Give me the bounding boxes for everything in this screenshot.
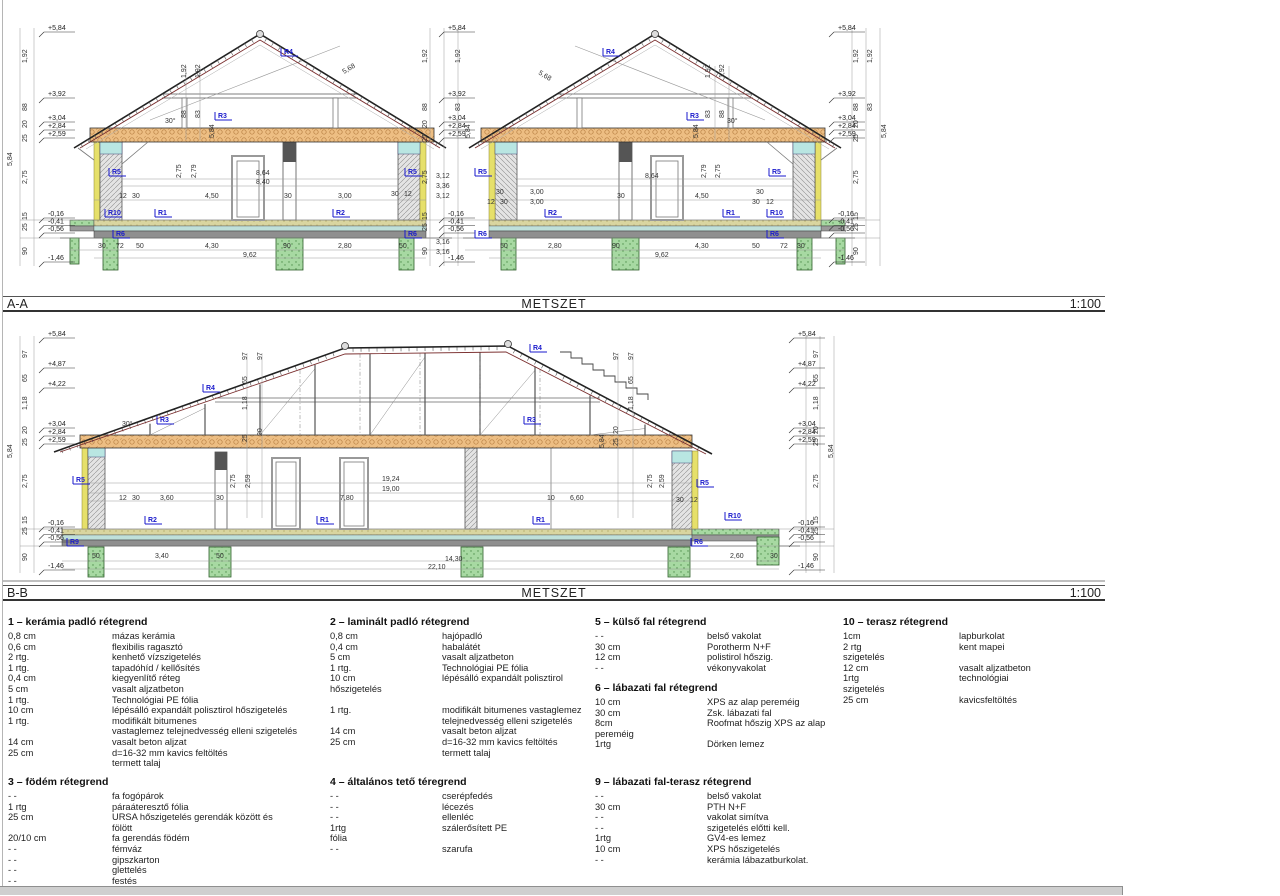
dimension-label: 25: [422, 134, 429, 142]
legend-layer-description: vasalt aljzatbeton: [959, 663, 1115, 674]
legend-layer-description: belső vakolat: [707, 631, 841, 642]
dimension-label: 90: [853, 247, 860, 255]
dimension-label: 25: [813, 527, 820, 535]
dimension-label: 30: [617, 193, 625, 200]
legend-layer-thickness: - -: [8, 844, 112, 855]
legend-layer-description: kent mapei: [959, 642, 1115, 653]
legend-layer-thickness: 1rtg: [595, 739, 707, 750]
dimension-label: 30°: [727, 117, 738, 125]
horizontal-scrollbar[interactable]: [0, 886, 1123, 895]
legend-layer-thickness: hőszigetelés: [330, 684, 442, 695]
dimension-label: 90: [22, 247, 29, 255]
legend-layer-thickness: 1rtg: [843, 673, 959, 684]
legend-layer-thickness: [330, 695, 442, 706]
elevation-label: -0,41: [448, 219, 464, 226]
layer-ref-label: R10: [728, 513, 741, 520]
legend-layer-description: habalátét: [442, 642, 592, 653]
dimension-label: 50: [136, 243, 144, 250]
layer-ref-label: R5: [112, 169, 121, 176]
legend-row: 0,4 cmkiegyenlítő réteg: [8, 673, 326, 684]
legend-layer-description: mázas kerámia: [112, 631, 326, 642]
legend-layer-description: szálerősített PE: [442, 823, 592, 834]
layer-ref-label: R9: [70, 539, 79, 546]
legend-layer-description: festés: [112, 876, 326, 887]
dimension-label: 4,30: [205, 243, 219, 250]
dimension-label: 12: [766, 199, 774, 206]
dimension-label: 1,18: [22, 396, 29, 410]
legend-layer-thickness: fólia: [330, 833, 442, 844]
legend-layer-description: fa gerendás födém: [112, 833, 326, 844]
dimension-label: 3,00: [338, 193, 352, 200]
legend-layer-description: XPS hőszigetelés: [707, 844, 841, 855]
dimension-label: 97: [242, 352, 249, 360]
elevation-label: -0,16: [48, 211, 64, 218]
legend-title: 6 – lábazati fal rétegrend: [595, 682, 841, 694]
dimension-label: 30: [752, 199, 760, 206]
layer-ref-label: R3: [690, 113, 699, 120]
legend-layer-description: kenhető vízszigetelés: [112, 652, 326, 663]
drawing-sheet: 5,841,928820252,75152590+5,84+3,92+3,04+…: [0, 0, 1280, 896]
dimension-label: 88: [22, 103, 29, 111]
legend-row: fölött: [8, 823, 326, 834]
legend-layer-description: vasalt aljzatbeton: [112, 684, 326, 695]
legend-row: 1 rtg.modifikált bitumenes: [8, 716, 326, 727]
legend-title: 9 – lábazati fal-terasz rétegrend: [595, 776, 841, 788]
legend-layer-thickness: [8, 758, 112, 769]
elevation-label: +3,04: [48, 115, 66, 122]
dimension-label: 50: [500, 243, 508, 250]
legend-layer-thickness: [8, 726, 112, 737]
legend-layer-description: modifikált bitumenes: [112, 716, 326, 727]
legend-row: - -ellenléc: [330, 812, 592, 823]
dimension-label: 97: [813, 350, 820, 358]
elevation-label: -0,56: [448, 226, 464, 233]
legend-layer-thickness: - -: [595, 812, 707, 823]
layer-ref-label: R4: [533, 345, 542, 352]
layer-ref-label: R5: [700, 480, 709, 487]
legend-row: - -gipszkarton: [8, 855, 326, 866]
legend-layer-thickness: 8cm: [595, 718, 707, 729]
legend-layer-description: d=16-32 mm kavics feltöltés: [442, 737, 592, 748]
dimension-label: 15: [22, 212, 29, 220]
legend-layer-thickness: [330, 748, 442, 759]
dimension-label: 30: [132, 495, 140, 502]
elevation-label: -0,41: [48, 219, 64, 226]
legend-title: 5 – külső fal rétegrend: [595, 616, 841, 628]
legend-layer-description: [959, 652, 1115, 663]
section-bb-label: B-B: [7, 586, 187, 600]
legend-row: - -vakolat simítva: [595, 812, 841, 823]
legend-layer-thickness: 1rtg: [595, 833, 707, 844]
legend-layer-thickness: - -: [8, 876, 112, 887]
dimension-label: 12: [119, 193, 127, 200]
legend-row: 1 rtg.tapadóhíd / kellősítés: [8, 663, 326, 674]
legend-layer-thickness: - -: [8, 855, 112, 866]
dimension-label: 2,75: [22, 474, 29, 488]
legend-layer-description: PTH N+F: [707, 802, 841, 813]
legend-row: - -belső vakolat: [595, 631, 841, 642]
section-aa-title: METSZET: [187, 297, 921, 311]
legend-block: 9 – lábazati fal-terasz rétegrend- -bels…: [595, 776, 841, 865]
legend-row: 1 rtg.modifikált bitumenes vastaglemez: [330, 705, 592, 716]
elevation-label: -0,56: [838, 226, 854, 233]
elevation-label: +3,04: [448, 115, 466, 122]
dimension-label: 8,64: [256, 170, 270, 177]
legend-layer-thickness: 10 cm: [330, 673, 442, 684]
dimension-label: 15: [22, 516, 29, 524]
legend-row: 25 cmURSA hőszigetelés gerendák között é…: [8, 812, 326, 823]
dimension-label: 90: [22, 553, 29, 561]
dimension-label: 12: [487, 199, 495, 206]
layer-ref-label: R5: [408, 169, 417, 176]
legend-title: 1 – kerámia padló rétegrend: [8, 616, 326, 628]
dimension-label: 30°: [122, 420, 133, 428]
legend-row: 8cmRoofmat hőszig XPS az alap: [595, 718, 841, 729]
legend-layer-thickness: 1 rtg.: [8, 663, 112, 674]
legend-layer-thickness: 5 cm: [8, 684, 112, 695]
elevation-label: +5,84: [838, 25, 856, 32]
dimension-label: 1,18: [628, 396, 635, 410]
legend-layer-description: lépésálló expandált polisztirol: [442, 673, 592, 684]
legend-layer-thickness: 30 cm: [595, 642, 707, 653]
legend-title: 2 – laminált padló rétegrend: [330, 616, 592, 628]
legend-layer-description: szarufa: [442, 844, 592, 855]
dimension-label: 30: [797, 243, 805, 250]
dimension-label: 5,84: [7, 444, 14, 458]
legend-row: 0,8 cmmázas kerámia: [8, 631, 326, 642]
layer-ref-label: R1: [726, 210, 735, 217]
legend-layer-thickness: 1 rtg.: [8, 716, 112, 727]
layer-ref-label: R6: [116, 231, 125, 238]
legend-block: 6 – lábazati fal rétegrend10 cmXPS az al…: [595, 682, 841, 750]
legend-layer-description: Dörken lemez: [707, 739, 841, 750]
legend-layer-description: termett talaj: [442, 748, 592, 759]
dimension-label: 25: [853, 223, 860, 231]
dimension-label: 65: [628, 376, 635, 384]
elevation-label: +5,84: [798, 331, 816, 338]
dimension-label: 30: [132, 193, 140, 200]
layer-ref-label: R2: [336, 210, 345, 217]
legend-row: - -kerámia lábazatburkolat.: [595, 855, 841, 866]
legend-row: 30 cmZsk. lábazati fal: [595, 708, 841, 719]
legend-layer-description: tapadóhíd / kellősítés: [112, 663, 326, 674]
dimension-label: 20: [422, 120, 429, 128]
layer-ref-label: R10: [108, 210, 121, 217]
legend-layer-description: vékonyvakolat: [707, 663, 841, 674]
legend-layer-description: technológiai: [959, 673, 1115, 684]
legend-layer-thickness: 1cm: [843, 631, 959, 642]
elevation-label: -1,46: [48, 255, 64, 262]
legend-row: 10 cmlépésálló expandált polisztirol: [330, 673, 592, 684]
dimension-label: 2,59: [245, 474, 252, 488]
dimension-label: 83: [705, 110, 712, 118]
legend-layer-thickness: 0,4 cm: [8, 673, 112, 684]
dimension-label: 97: [613, 352, 620, 360]
dimension-label: 2,75: [422, 170, 429, 184]
dimension-label: 2,75: [647, 474, 654, 488]
legend-layer-description: kavicsfeltöltés: [959, 695, 1115, 706]
dimension-label: 10: [547, 495, 555, 502]
dimension-label: 1,18: [242, 396, 249, 410]
legend-row: 0,4 cmhabalátét: [330, 642, 592, 653]
legend-row: termett talaj: [330, 748, 592, 759]
elevation-label: -0,16: [798, 520, 814, 527]
legend-layer-description: fa fogópárok: [112, 791, 326, 802]
layer-ref-label: R1: [536, 517, 545, 524]
dimension-label: 1,92: [853, 49, 860, 63]
legend-row: 1 rtg.Technológiai PE fólia: [8, 695, 326, 706]
dimension-label: 4,50: [205, 193, 219, 200]
dimension-label: 2,75: [853, 170, 860, 184]
dimension-label: 88: [853, 103, 860, 111]
dimension-label: 14,30: [445, 556, 463, 563]
layer-ref-label: R4: [606, 49, 615, 56]
legend-block: 4 – általános tető téregrend- -cserépfed…: [330, 776, 592, 855]
dimension-label: 2,80: [548, 243, 562, 250]
elevation-label: +2,59: [48, 131, 66, 138]
legend-row: 25 cmkavicsfeltöltés: [843, 695, 1115, 706]
elevation-label: -0,41: [798, 528, 814, 535]
legend-row: 0,8 cmhajópadló: [330, 631, 592, 642]
dimension-label: 25: [22, 134, 29, 142]
dimension-label: 12: [404, 191, 412, 198]
legend-layer-thickness: 30 cm: [595, 708, 707, 719]
legend-row: 1rtgtechnológiai: [843, 673, 1115, 684]
legend-layer-thickness: 5 cm: [330, 652, 442, 663]
legend-layer-description: GV4-es lemez: [707, 833, 841, 844]
legend-layer-thickness: 25 cm: [843, 695, 959, 706]
dimension-label: 90: [612, 243, 620, 250]
dimension-label: 9,62: [655, 252, 669, 259]
dimension-label: 1,92: [181, 64, 188, 78]
elevation-label: +2,59: [448, 131, 466, 138]
dimension-label: 4,50: [695, 193, 709, 200]
dimension-label: 30: [500, 199, 508, 206]
dimension-label: 1,92: [455, 49, 462, 63]
section-bb-scale: 1:100: [921, 586, 1101, 600]
legend-layer-thickness: - -: [595, 855, 707, 866]
dimension-label: 12: [119, 495, 127, 502]
legend-row: - -szarufa: [330, 844, 592, 855]
dimension-label: 90: [283, 243, 291, 250]
dimension-label: 4,30: [695, 243, 709, 250]
legend-block: 10 – terasz rétegrend1cmlapburkolat2 rtg…: [843, 616, 1115, 705]
dimension-label: 15: [422, 212, 429, 220]
dimension-label: 83: [455, 103, 462, 111]
legend-row: 25 cmd=16-32 mm kavics feltöltés: [8, 748, 326, 759]
dimension-label: 5,84: [693, 124, 700, 138]
dimension-label: 2,75: [813, 474, 820, 488]
legend-layer-description: szigetelés előtti kell.: [707, 823, 841, 834]
elevation-label: +2,84: [48, 123, 66, 130]
dimension-label: 1,92: [422, 49, 429, 63]
layer-ref-label: R2: [548, 210, 557, 217]
elevation-label: -0,56: [798, 535, 814, 542]
legend-block: 3 – födém rétegrend- -fa fogópárok1 rtgp…: [8, 776, 326, 886]
section-aa-scale: 1:100: [921, 297, 1101, 311]
dimension-label: 5,68: [341, 63, 356, 76]
elevation-label: -0,56: [48, 535, 64, 542]
dimension-label: 3,16: [436, 239, 450, 246]
dimension-label: 25: [22, 223, 29, 231]
dimension-label: 8,40: [256, 179, 270, 186]
layer-ref-label: R6: [408, 231, 417, 238]
dimension-label: 1,92: [867, 49, 874, 63]
dimension-label: 30: [391, 191, 399, 198]
legend-row: 25 cmd=16-32 mm kavics feltöltés: [330, 737, 592, 748]
legend-layer-thickness: - -: [595, 663, 707, 674]
legend-row: 1rtgGV4-es lemez: [595, 833, 841, 844]
legend-row: - -fa fogópárok: [8, 791, 326, 802]
legend-row: 12 cmpolistirol hőszig.: [595, 652, 841, 663]
dimension-label: 20: [813, 426, 820, 434]
legend-row: 2 rtgkent mapei: [843, 642, 1115, 653]
legend-layer-thickness: [8, 823, 112, 834]
dimension-label: 97: [257, 352, 264, 360]
legend-row: 1rtgszálerősített PE: [330, 823, 592, 834]
legend-row: pereméig: [595, 729, 841, 740]
elevation-label: +2,84: [48, 429, 66, 436]
dimension-label: 25: [242, 434, 249, 442]
legend-layer-description: kerámia lábazatburkolat.: [707, 855, 841, 866]
legend-layer-description: lapburkolat: [959, 631, 1115, 642]
layer-ref-label: R10: [770, 210, 783, 217]
dimension-label: 9,62: [243, 252, 257, 259]
dimension-label: 1,18: [813, 396, 820, 410]
legend-row: - -glettelés: [8, 865, 326, 876]
legend-layer-description: telejnedvesség elleni szigetelés: [442, 716, 592, 727]
dimension-label: 5,68: [537, 70, 552, 83]
legend-layer-description: polistirol hőszig.: [707, 652, 841, 663]
dimension-label: 12: [690, 497, 698, 504]
legend-row: 5 cmvasalt aljzatbeton: [8, 684, 326, 695]
legend-layer-thickness: 10 cm: [595, 697, 707, 708]
dimension-label: 19,00: [382, 486, 400, 493]
legend-row: 1rtgDörken lemez: [595, 739, 841, 750]
dimension-label: 2,75: [176, 164, 183, 178]
legend-row: 10 cmlépésálló expandált polisztirol hős…: [8, 705, 326, 716]
legend-layer-thickness: 0,4 cm: [330, 642, 442, 653]
legend-layer-thickness: 2 rtg.: [8, 652, 112, 663]
dimension-label: 3,00: [530, 199, 544, 206]
dimension-label: 15: [853, 212, 860, 220]
dimension-label: 30: [676, 497, 684, 504]
legend-block: 2 – laminált padló rétegrend0,8 cmhajópa…: [330, 616, 592, 758]
dimension-label: 5,84: [599, 434, 606, 448]
elevation-label: -0,16: [48, 520, 64, 527]
elevation-label: -0,41: [48, 528, 64, 535]
elevation-label: +3,92: [448, 91, 466, 98]
legend-layer-thickness: 10 cm: [8, 705, 112, 716]
elevation-label: +5,84: [448, 25, 466, 32]
legend-row: - -szigetelés előtti kell.: [595, 823, 841, 834]
legend-layer-thickness: 1rtg: [330, 823, 442, 834]
dimension-label: 30: [770, 553, 778, 560]
dimension-label: 20: [613, 426, 620, 434]
dimension-label: 90: [422, 247, 429, 255]
legend-layer-description: Zsk. lábazati fal: [707, 708, 841, 719]
legend-row: - -fémváz: [8, 844, 326, 855]
legend-row: 1 rtgpáraáteresztő fólia: [8, 802, 326, 813]
legend-row: hőszigetelés: [330, 684, 592, 695]
elevation-label: +4,22: [48, 381, 66, 388]
dimension-label: 2,75: [715, 164, 722, 178]
legend-layer-thickness: 10 cm: [595, 844, 707, 855]
dimension-label: 2,79: [701, 164, 708, 178]
dimension-label: 3,00: [530, 189, 544, 196]
section-bb-titlebar: B-B METSZET 1:100: [3, 585, 1105, 601]
legend-layer-description: vasalt beton aljzat: [112, 737, 326, 748]
legend-layer-thickness: 0,8 cm: [8, 631, 112, 642]
dimension-label: 83: [867, 103, 874, 111]
legend-row: - -lécezés: [330, 802, 592, 813]
elevation-label: -0,16: [448, 211, 464, 218]
legend-layer-description: lépésálló expandált polisztirol hősziget…: [112, 705, 326, 716]
dimension-label: 2,79: [191, 164, 198, 178]
legend-layer-thickness: 1 rtg.: [330, 663, 442, 674]
layer-ref-label: R3: [527, 417, 536, 424]
dimension-label: 3,12: [436, 193, 450, 200]
dimension-label: 7,80: [340, 495, 354, 502]
dimension-label: 8,64: [645, 173, 659, 180]
legend-layer-thickness: 25 cm: [8, 748, 112, 759]
legend-row: - -cserépfedés: [330, 791, 592, 802]
legend-layer-thickness: 12 cm: [843, 663, 959, 674]
legend-layer-description: vasalt aljzatbeton: [442, 652, 592, 663]
elevation-label: +3,04: [48, 421, 66, 428]
legend-layer-description: vakolat simítva: [707, 812, 841, 823]
dimension-label: 25: [22, 527, 29, 535]
dimension-label: 20: [257, 428, 264, 436]
dimension-label: 83: [195, 110, 202, 118]
dimension-label: 25: [422, 223, 429, 231]
dimension-label: 97: [22, 350, 29, 358]
legend-layer-description: Technológiai PE fólia: [112, 695, 326, 706]
legend-row: 0,6 cmflexibilis ragasztó: [8, 642, 326, 653]
legend-layer-description: kiegyenlítő réteg: [112, 673, 326, 684]
dimension-label: 25: [22, 438, 29, 446]
legend-row: termett talaj: [8, 758, 326, 769]
legend-layer-thickness: szigetelés: [843, 652, 959, 663]
dimension-label: 5,84: [828, 444, 835, 458]
legend-layer-description: d=16-32 mm kavics feltöltés: [112, 748, 326, 759]
dimension-label: 30: [496, 189, 504, 196]
legend-layer-description: vasalt beton aljzat: [442, 726, 592, 737]
legend-layer-thickness: - -: [8, 791, 112, 802]
legend-layer-thickness: 0,6 cm: [8, 642, 112, 653]
legend-layer-thickness: 0,8 cm: [330, 631, 442, 642]
legend-title: 4 – általános tető téregrend: [330, 776, 592, 788]
dimension-label: 22,10: [428, 564, 446, 571]
elevation-label: +3,92: [838, 91, 856, 98]
legend-layer-description: Porotherm N+F: [707, 642, 841, 653]
dimension-label: 25: [813, 438, 820, 446]
legend-row: - -belső vakolat: [595, 791, 841, 802]
dimension-label: 15: [813, 516, 820, 524]
dimension-label: 90: [813, 553, 820, 561]
legend-layer-description: páraáteresztő fólia: [112, 802, 326, 813]
dimension-label: 2,60: [730, 553, 744, 560]
legend-row: 30 cmPTH N+F: [595, 802, 841, 813]
section-aa-label: A-A: [7, 297, 187, 311]
legend-layer-thickness: [330, 716, 442, 727]
dimension-label: 20: [22, 120, 29, 128]
legend-row: 10 cmXPS az alap pereméig: [595, 697, 841, 708]
layer-ref-label: R5: [76, 477, 85, 484]
legend-layer-thickness: - -: [330, 812, 442, 823]
legend-row: szigetelés: [843, 684, 1115, 695]
elevation-label: +5,84: [48, 331, 66, 338]
